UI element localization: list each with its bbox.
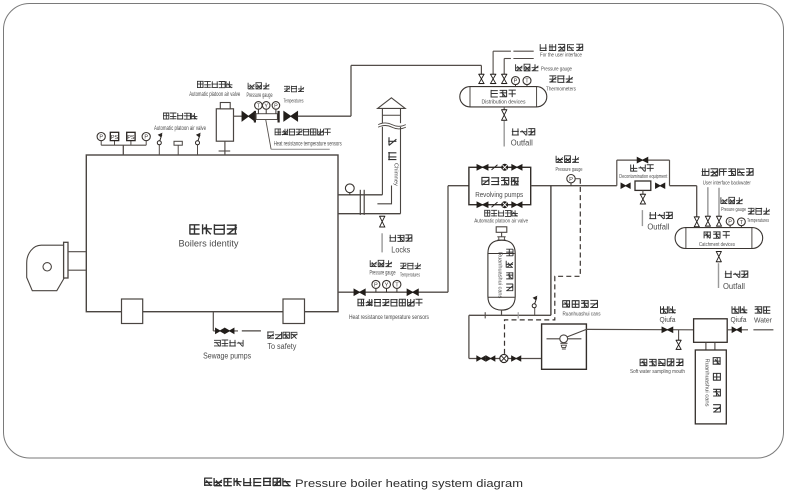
svg-text:Heat resistance temperature se: Heat resistance temperature sensors (349, 314, 429, 321)
svg-text:Ruanhuashui cans: Ruanhuashui cans (563, 311, 601, 317)
svg-text:Y: Y (264, 103, 268, 109)
svg-text:Qiufa: Qiufa (660, 315, 676, 324)
svg-text:T: T (395, 282, 399, 288)
svg-text:P: P (274, 103, 278, 109)
svg-text:Distribution devices: Distribution devices (482, 100, 526, 106)
svg-text:Water: Water (754, 316, 773, 325)
svg-text:Chimney: Chimney (393, 163, 399, 186)
svg-text:P: P (569, 177, 573, 183)
svg-text:P: P (99, 135, 103, 141)
svg-text:P: P (374, 282, 378, 288)
svg-text:P: P (144, 135, 148, 141)
svg-text:Temperatures: Temperatures (284, 99, 304, 105)
svg-text:Temperatures: Temperatures (747, 218, 769, 224)
svg-text:Ruanhuashui cans: Ruanhuashui cans (497, 252, 503, 299)
svg-text:PS: PS (127, 135, 135, 141)
svg-text:Outfall: Outfall (511, 139, 533, 148)
svg-text:Boilers identity: Boilers identity (179, 239, 239, 250)
svg-text:Automatic platoon air valve: Automatic platoon air valve (154, 125, 206, 132)
svg-text:Sewage pumps: Sewage pumps (203, 352, 251, 361)
svg-text:Outfall: Outfall (723, 282, 745, 291)
svg-text:Temperatures: Temperatures (400, 273, 420, 279)
svg-text:Catchment devices: Catchment devices (699, 242, 735, 248)
svg-text:Presure gauge: Presure gauge (721, 207, 746, 213)
svg-text:For the user interface: For the user interface (540, 52, 582, 58)
svg-text:Heat resistance temperature se: Heat resistance temperature sensors (274, 140, 342, 147)
svg-text:Pressure gauge: Pressure gauge (370, 270, 396, 277)
svg-text:Thermometers: Thermometers (546, 87, 576, 93)
svg-text:Revolving pumps: Revolving pumps (475, 190, 523, 199)
svg-text:T: T (525, 79, 529, 85)
svg-text:P: P (728, 219, 732, 225)
svg-text:Qiufa: Qiufa (731, 315, 747, 324)
svg-text:Y: Y (385, 282, 389, 288)
svg-text:Automatic platoon air valve: Automatic platoon air valve (189, 91, 240, 98)
svg-text:Pressure gauge: Pressure gauge (556, 167, 583, 173)
svg-text:PS: PS (111, 135, 119, 141)
svg-text:Pressure boiler heating sys: Pressure boiler heating system diagram (295, 478, 523, 490)
svg-text:Decontamination equipment: Decontamination equipment (619, 174, 667, 180)
svg-text:Automatic platoon air valve: Automatic platoon air valve (474, 219, 528, 225)
svg-text:Outfall: Outfall (647, 223, 669, 232)
svg-text:Pressure gauge: Pressure gauge (541, 66, 572, 72)
svg-text:Ruanhuashui cans: Ruanhuashui cans (704, 359, 710, 407)
svg-text:Pressure gauge: Pressure gauge (247, 92, 273, 99)
svg-text:P: P (514, 79, 518, 85)
svg-text:Soft water sampling mouth: Soft water sampling mouth (630, 369, 685, 375)
svg-text:To safety: To safety (267, 342, 296, 351)
svg-text:User interface backwater: User interface backwater (703, 181, 751, 187)
svg-text:Locks: Locks (391, 246, 410, 255)
